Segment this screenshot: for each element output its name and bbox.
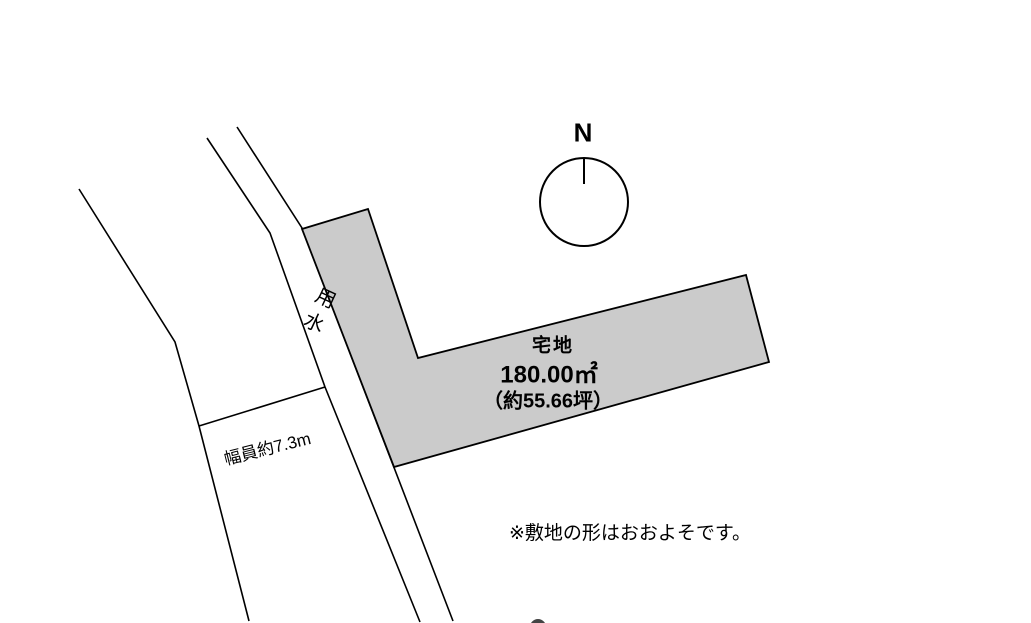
bottom-partial-dot xyxy=(530,619,546,623)
disclaimer-note: ※敷地の形はおおよそです。 xyxy=(509,518,751,545)
road-boundary-divider-line xyxy=(199,387,325,426)
land-plot-diagram: N 宅地 180.00㎡ （約55.66坪） 用水 幅員約7.3m ※敷地の形は… xyxy=(0,0,1031,623)
north-label: N xyxy=(574,118,593,149)
plot-name-label: 宅地 xyxy=(532,331,574,358)
plot-area-tsubo-label: （約55.66坪） xyxy=(483,385,613,414)
road-left-edge-line xyxy=(79,189,249,621)
